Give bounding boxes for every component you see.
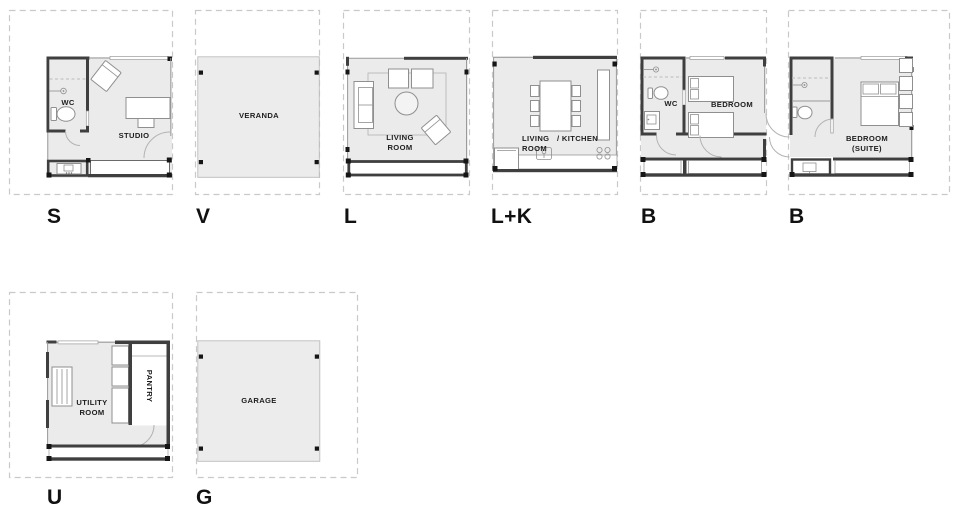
washbasin-icon — [645, 112, 660, 130]
room-label-garage: GARAGE — [241, 396, 276, 406]
module-letter-g: G — [196, 487, 213, 509]
floor-plan-drawing — [0, 0, 960, 516]
drying-rack-icon — [52, 367, 72, 406]
chair-icon — [572, 86, 581, 97]
chair-icon — [572, 101, 581, 112]
cabinet-icon — [900, 95, 913, 109]
bed-icon — [689, 77, 734, 102]
room-label-bedroom-suite: BEDROOM (SUITE) — [846, 134, 888, 154]
module-letter-v: V — [196, 206, 210, 228]
toilet-icon — [648, 88, 653, 99]
plan-bedroom — [641, 56, 790, 177]
chair-icon — [531, 116, 540, 127]
counter-icon — [598, 70, 610, 140]
room-label-utility-room: UTILITY ROOM — [76, 398, 107, 418]
room-label-bedroom: BEDROOM — [711, 100, 753, 110]
room-label-veranda: VERANDA — [239, 111, 279, 121]
armchair-icon — [389, 69, 409, 88]
room-label-living-room: LIVING ROOM — [386, 133, 413, 153]
coffee-table-icon — [395, 92, 418, 115]
chair-icon — [531, 86, 540, 97]
floor-plan-module-catalog: WC STUDIO VERANDA LIVING ROOM LIVING ROO… — [0, 0, 960, 516]
armchair-icon — [412, 69, 434, 88]
cabinet-icon — [112, 388, 129, 423]
module-letter-lk: L+K — [491, 206, 532, 228]
room-label-wc-bedroom: WC — [664, 99, 677, 109]
bed-icon — [689, 113, 734, 138]
double-bed-icon — [861, 82, 899, 126]
room-label-living-room-lk: LIVING ROOM — [522, 134, 549, 154]
chair-icon — [572, 116, 581, 127]
module-letter-u: U — [47, 487, 62, 509]
room-label-wc: WC — [61, 98, 74, 108]
cabinet-icon — [900, 59, 913, 73]
plan-living-room — [346, 57, 469, 178]
toilet-icon — [793, 107, 798, 118]
desk-icon — [126, 98, 170, 119]
desk-chair-icon — [138, 119, 154, 128]
module-letter-s: S — [47, 206, 61, 228]
fridge-icon — [495, 148, 519, 170]
sofa-icon — [354, 82, 374, 129]
chair-icon — [531, 101, 540, 112]
room-label-kitchen: / KITCHEN — [557, 134, 598, 144]
plan-bedroom-suite — [770, 56, 914, 177]
plan-living-kitchen — [493, 56, 618, 172]
cabinet-icon — [112, 346, 129, 365]
dining-table-icon — [540, 81, 571, 131]
plan-studio — [47, 56, 173, 178]
module-letter-b2: B — [789, 206, 804, 228]
cabinet-icon — [900, 77, 913, 91]
cabinet-icon — [112, 367, 129, 386]
room-label-studio: STUDIO — [119, 131, 150, 141]
room-label-pantry: PANTRY — [144, 370, 154, 402]
module-letter-l: L — [344, 206, 357, 228]
module-letter-b1: B — [641, 206, 656, 228]
toilet-icon — [51, 108, 57, 121]
cabinet-icon — [900, 113, 913, 127]
